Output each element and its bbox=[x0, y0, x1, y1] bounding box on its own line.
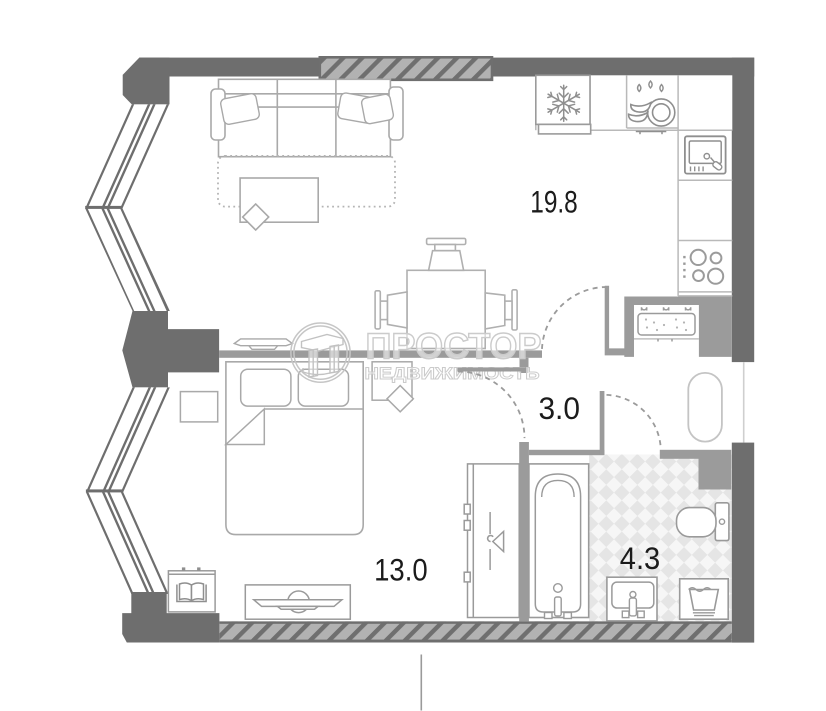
svg-text:4.3: 4.3 bbox=[620, 540, 661, 576]
svg-text:13.0: 13.0 bbox=[374, 552, 428, 588]
svg-text:ПРОСТОР: ПРОСТОР bbox=[366, 326, 542, 367]
svg-text:19.8: 19.8 bbox=[530, 184, 578, 220]
svg-text:3.0: 3.0 bbox=[538, 390, 580, 426]
